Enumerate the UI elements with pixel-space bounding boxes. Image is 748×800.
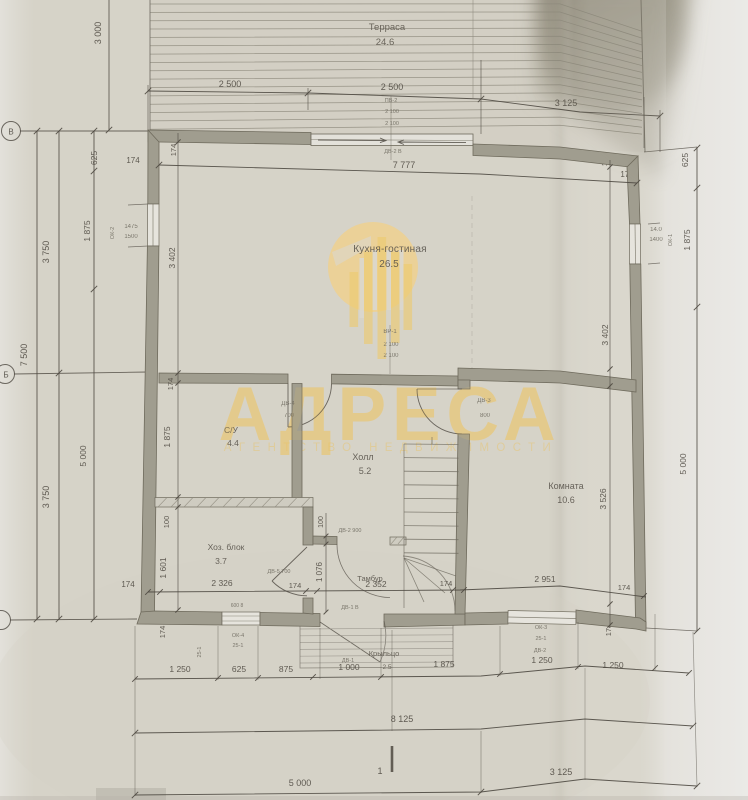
svg-text:1 875: 1 875 [162,426,172,448]
svg-text:5 000: 5 000 [289,778,312,788]
svg-text:2.5: 2.5 [382,664,391,671]
svg-text:ПВ-2: ПВ-2 [385,98,398,104]
svg-text:5 000: 5 000 [78,445,88,467]
svg-text:25-1: 25-1 [535,636,546,642]
svg-text:3 750: 3 750 [41,241,51,264]
svg-text:5.2: 5.2 [359,466,372,476]
svg-text:Терраса: Терраса [369,22,406,33]
svg-text:625: 625 [232,664,246,674]
svg-text:625: 625 [89,151,99,165]
svg-text:ДВ-1 В: ДВ-1 В [341,605,359,611]
svg-text:Б: Б [3,371,8,380]
svg-text:ДВ-1: ДВ-1 [342,658,354,664]
svg-text:В: В [8,128,13,137]
svg-text:174: 174 [121,580,135,589]
svg-text:2 100: 2 100 [385,121,399,127]
svg-text:1 875: 1 875 [82,220,92,242]
svg-text:174: 174 [169,144,178,157]
svg-text:ВР-1: ВР-1 [383,329,397,335]
svg-text:3.7: 3.7 [215,556,227,566]
svg-text:1475: 1475 [124,224,138,230]
svg-text:1500: 1500 [124,234,138,240]
svg-text:1 601: 1 601 [158,557,168,579]
svg-text:2 100: 2 100 [385,109,399,115]
svg-text:174: 174 [158,626,167,639]
svg-text:174: 174 [440,579,453,588]
svg-text:14.0: 14.0 [650,227,662,233]
svg-text:1: 1 [377,766,382,776]
svg-text:1 076: 1 076 [315,561,324,582]
svg-text:2 500: 2 500 [219,79,242,89]
svg-text:100: 100 [162,516,171,529]
svg-text:100: 100 [318,516,325,528]
svg-text:5 000: 5 000 [678,453,688,475]
svg-text:625: 625 [680,153,690,167]
svg-text:3 000: 3 000 [93,22,103,45]
svg-text:ДВ-5 700: ДВ-5 700 [268,569,291,575]
svg-text:ОК-3: ОК-3 [535,625,547,631]
svg-text:7 500: 7 500 [19,344,29,367]
svg-text:25-1: 25-1 [232,643,243,649]
svg-text:2 500: 2 500 [381,82,404,92]
svg-text:174: 174 [166,378,175,391]
svg-text:ДВ-2 900: ДВ-2 900 [339,528,362,534]
svg-text:3 526: 3 526 [598,488,608,510]
svg-text:875: 875 [279,664,293,674]
svg-text:1 250: 1 250 [169,664,191,674]
svg-text:24.6: 24.6 [376,37,395,48]
svg-text:25-1: 25-1 [197,646,203,657]
svg-text:1 250: 1 250 [531,655,553,665]
svg-text:174: 174 [126,156,140,165]
svg-text:ДВ-2: ДВ-2 [534,648,546,654]
svg-text:Крыльцо: Крыльцо [369,649,400,658]
svg-text:ОК-4: ОК-4 [232,633,244,639]
svg-text:2 100: 2 100 [383,342,399,348]
svg-text:1 875: 1 875 [433,659,455,669]
svg-text:Тамбур: Тамбур [357,574,382,583]
svg-text:7 777: 7 777 [393,160,416,170]
svg-text:ОК-2: ОК-2 [110,227,116,239]
svg-text:174: 174 [289,581,302,590]
svg-text:2 951: 2 951 [534,574,556,584]
svg-text:3 750: 3 750 [41,486,51,509]
svg-text:1 250: 1 250 [602,660,624,670]
svg-text:3 402: 3 402 [167,247,177,269]
svg-text:Комната: Комната [548,481,583,491]
svg-text:3 402: 3 402 [600,324,610,346]
svg-text:10.6: 10.6 [557,495,575,505]
svg-text:АДРЕСА: АДРЕСА [219,372,562,457]
svg-text:Хоз. блок: Хоз. блок [208,542,245,552]
svg-text:174: 174 [618,583,631,592]
svg-text:ДВ-2 В: ДВ-2 В [384,149,402,155]
svg-text:600 8: 600 8 [231,603,244,609]
svg-text:3 125: 3 125 [550,767,573,777]
svg-text:ОК-1: ОК-1 [668,234,674,246]
svg-text:2 100: 2 100 [383,353,399,359]
svg-text:1 875: 1 875 [682,229,692,251]
svg-text:1400: 1400 [649,237,663,243]
svg-text:Кухня-гостиная: Кухня-гостиная [353,244,427,255]
svg-text:26.5: 26.5 [379,259,399,270]
svg-text:8 125: 8 125 [391,714,414,724]
svg-text:2 326: 2 326 [211,578,233,588]
